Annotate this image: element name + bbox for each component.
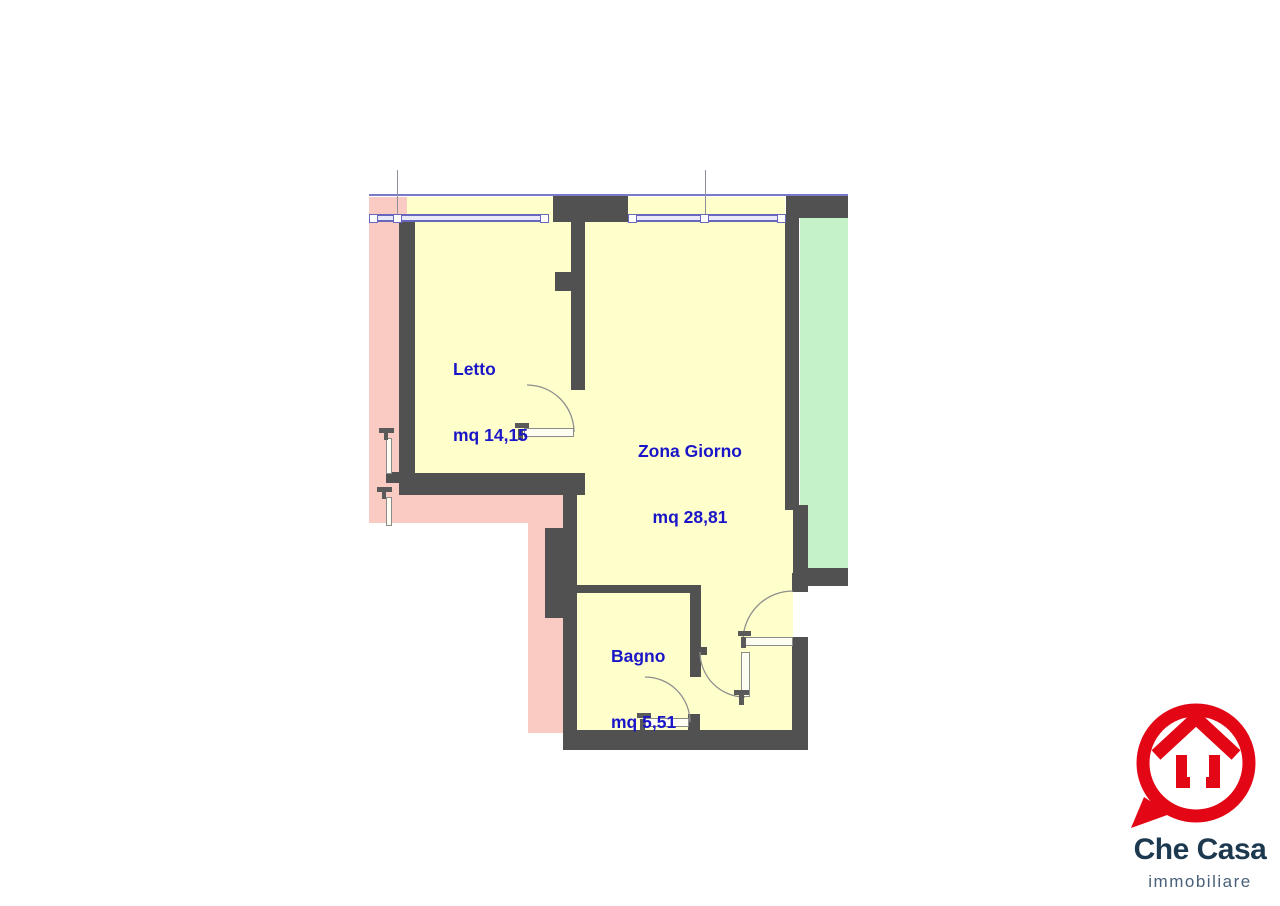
- room-label-letto: Letto mq 14,15: [453, 314, 528, 490]
- logo-house-floor-left: [1176, 777, 1190, 788]
- neighbor-door-leaf-lower: [386, 497, 392, 526]
- logo-house-floor-right: [1206, 777, 1220, 788]
- window-node: [540, 214, 549, 223]
- door-hinge-mark: [739, 695, 744, 705]
- wall-right-lower: [792, 637, 808, 750]
- door-hinge-mark: [382, 492, 386, 499]
- exterior-area-top-left: [369, 197, 407, 215]
- door-hinge-mark: [741, 637, 746, 648]
- wall-balcony-bottom: [798, 568, 848, 586]
- wall-bagno-top: [573, 585, 701, 593]
- neighbor-door-leaf-upper: [386, 438, 392, 474]
- wall-bagno-right: [690, 585, 701, 677]
- door-hinge-mark: [384, 433, 388, 440]
- room-label-zona-giorno: Zona Giorno mq 28,81: [600, 396, 780, 572]
- room-name: Zona Giorno: [600, 440, 780, 462]
- wall-mid-notch: [555, 272, 572, 291]
- wall-balcony-left: [785, 218, 799, 510]
- wall-top-center-pier: [553, 195, 628, 222]
- agency-brand-name: Che Casa: [1124, 833, 1276, 867]
- wall-mid-upper: [571, 217, 585, 390]
- room-label-bagno: Bagno mq 5,51: [611, 601, 676, 777]
- facade-reference-line: [369, 194, 848, 196]
- room-area: mq 5,51: [611, 711, 676, 733]
- window-node: [393, 214, 402, 223]
- door-hinge-mark: [738, 631, 751, 636]
- floor-plan: Letto mq 14,15 Zona Giorno mq 28,81 Bagn…: [0, 0, 1280, 906]
- window-node: [777, 214, 786, 223]
- room-area: mq 14,15: [453, 424, 528, 446]
- exterior-area-band: [399, 495, 563, 523]
- wall-bagno-stub: [690, 647, 707, 655]
- agency-logo-icon: [1130, 702, 1262, 834]
- window-node: [700, 214, 709, 223]
- bedroom-door-leaf: [524, 428, 574, 437]
- agency-tagline: immobiliare: [1124, 872, 1276, 892]
- wall-top-right-corner: [786, 195, 848, 218]
- balcony-entrance-door-leaf: [743, 637, 793, 646]
- wall-block-mid: [545, 528, 577, 618]
- wall-bottom: [563, 730, 808, 750]
- wall-left: [399, 217, 415, 495]
- room-area: mq 28,81: [600, 506, 780, 528]
- window-node: [369, 214, 378, 223]
- room-name: Bagno: [611, 645, 676, 667]
- room-name: Letto: [453, 358, 528, 380]
- window-node: [628, 214, 637, 223]
